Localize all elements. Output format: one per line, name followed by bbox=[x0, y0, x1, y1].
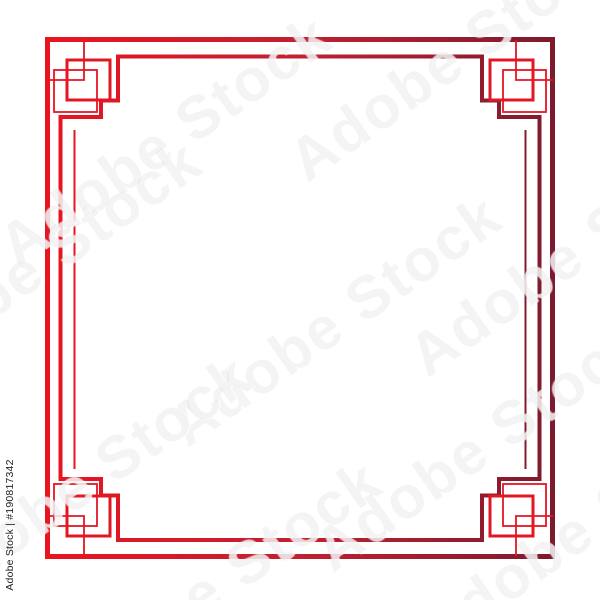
inner-stepped-border bbox=[61, 57, 540, 541]
outer-border bbox=[48, 40, 553, 557]
corner-ornament-top-left bbox=[47, 40, 110, 112]
ornamental-frame-graphic bbox=[0, 0, 600, 600]
corner-ornament-bottom-right bbox=[490, 484, 553, 556]
corner-ornament-bottom-left bbox=[47, 484, 110, 556]
stock-image-canvas: Adobe Stock Adobe Stock Adobe Stock Adob… bbox=[0, 0, 600, 600]
corner-ornament-top-right bbox=[490, 40, 553, 112]
